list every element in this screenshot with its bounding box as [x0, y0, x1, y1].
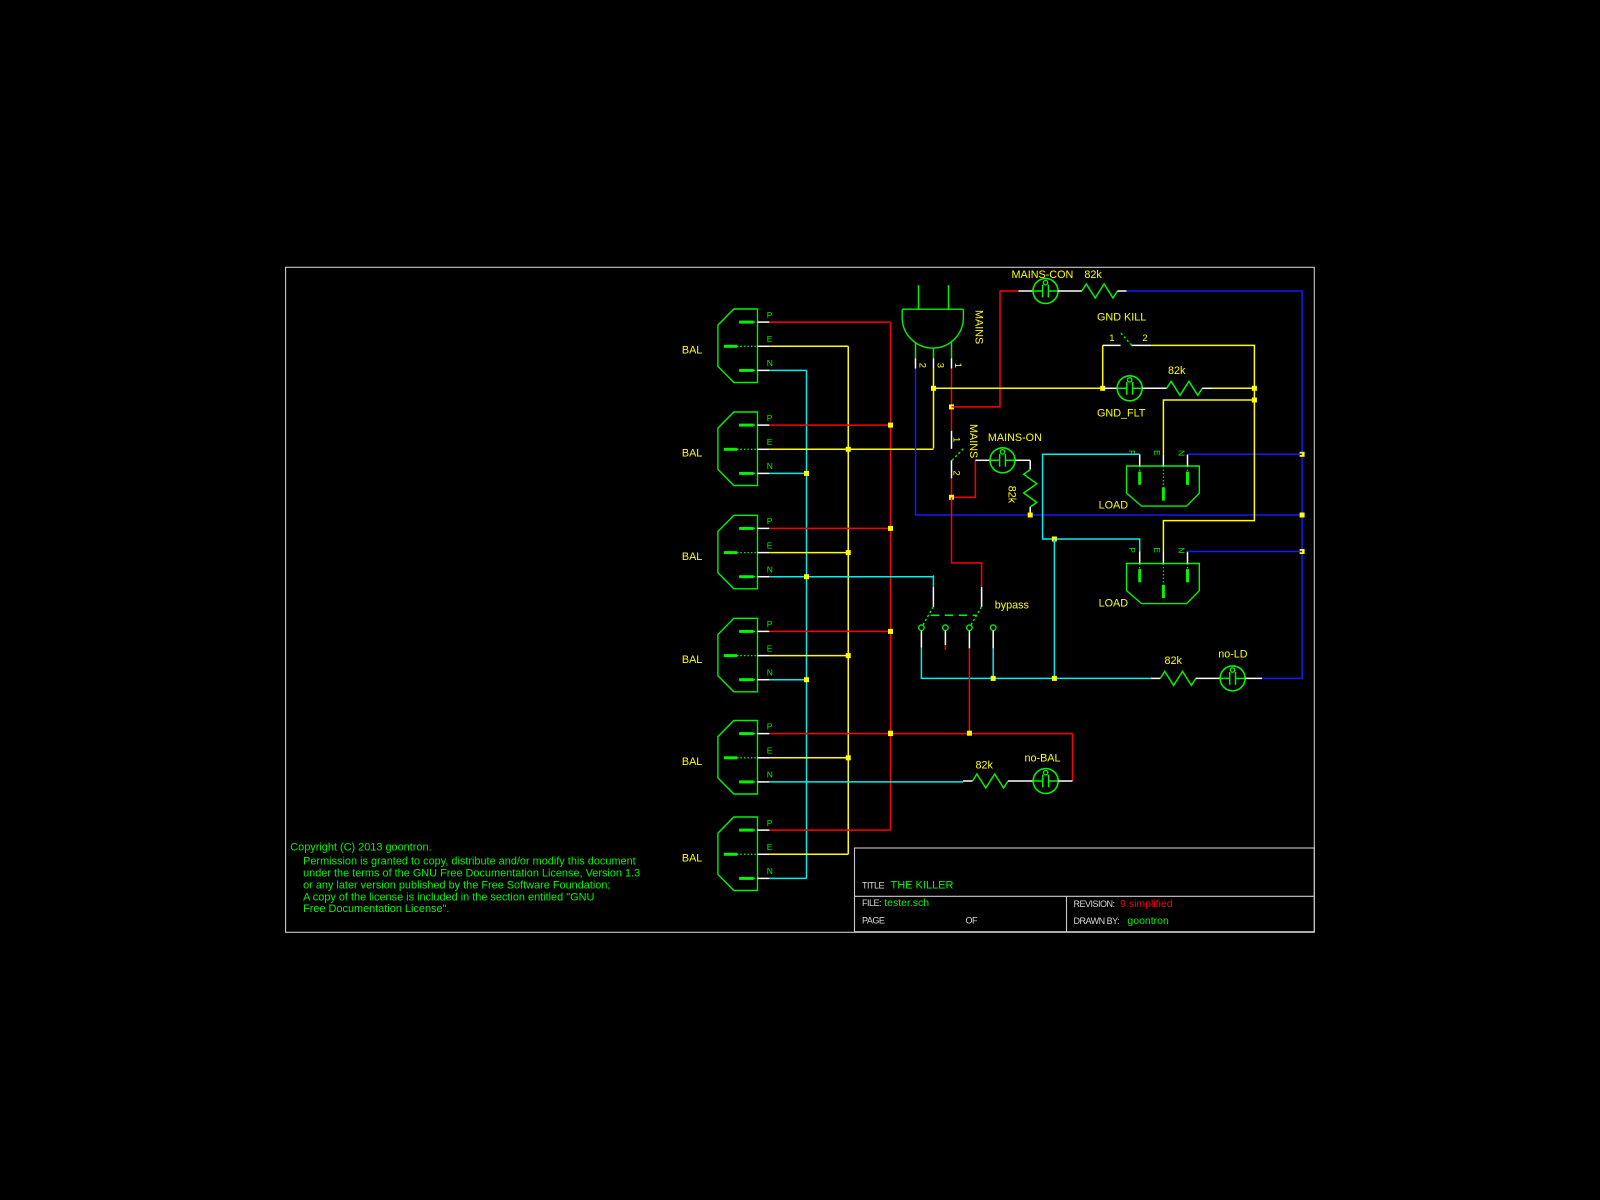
svg-text:REVISION:: REVISION:	[1074, 899, 1115, 909]
svg-text:N: N	[1176, 547, 1186, 553]
svg-text:N: N	[1176, 450, 1186, 456]
svg-text:1: 1	[952, 363, 963, 368]
svg-text:N: N	[767, 565, 773, 575]
svg-text:no-BAL: no-BAL	[1025, 753, 1061, 765]
svg-text:N: N	[767, 770, 773, 780]
svg-text:P: P	[1127, 450, 1137, 456]
svg-text:82k: 82k	[1084, 269, 1102, 281]
svg-text:9 simplified: 9 simplified	[1120, 898, 1173, 910]
svg-text:under the terms of the GNU Fre: under the terms of the GNU Free Document…	[303, 867, 640, 879]
svg-text:P: P	[767, 310, 773, 320]
svg-text:tester.sch: tester.sch	[884, 897, 929, 909]
svg-text:N: N	[767, 358, 773, 368]
svg-text:E: E	[767, 540, 773, 550]
svg-text:LOAD: LOAD	[1099, 499, 1129, 511]
svg-text:BAL: BAL	[682, 756, 702, 768]
svg-text:P: P	[767, 413, 773, 423]
svg-text:A copy of the license is inclu: A copy of the license is included in the…	[303, 891, 594, 903]
svg-text:BAL: BAL	[682, 551, 702, 563]
svg-text:LOAD: LOAD	[1099, 597, 1129, 609]
svg-text:bypass: bypass	[995, 600, 1030, 612]
svg-text:P: P	[767, 818, 773, 828]
svg-text:BAL: BAL	[682, 853, 702, 865]
svg-text:3: 3	[935, 363, 946, 368]
svg-text:2: 2	[1142, 333, 1147, 344]
svg-text:82k: 82k	[1006, 486, 1018, 504]
svg-text:BAL: BAL	[682, 654, 702, 666]
svg-text:P: P	[767, 721, 773, 731]
svg-text:82k: 82k	[1165, 655, 1183, 667]
svg-text:P: P	[767, 619, 773, 629]
svg-text:N: N	[767, 866, 773, 876]
svg-text:DRAWN BY:: DRAWN BY:	[1074, 916, 1120, 926]
svg-text:P: P	[1127, 547, 1137, 553]
svg-text:Permission is granted to copy,: Permission is granted to copy, distribut…	[303, 855, 636, 867]
svg-text:GND KILL: GND KILL	[1097, 311, 1146, 323]
svg-text:TITLE: TITLE	[862, 881, 885, 891]
svg-text:E: E	[767, 842, 773, 852]
svg-text:82k: 82k	[976, 760, 994, 772]
svg-text:E: E	[767, 334, 773, 344]
svg-text:BAL: BAL	[682, 448, 702, 460]
svg-text:PAGE: PAGE	[862, 915, 885, 925]
svg-text:THE KILLER: THE KILLER	[891, 880, 954, 892]
svg-text:E: E	[1152, 547, 1162, 553]
svg-text:2: 2	[917, 363, 928, 368]
svg-text:E: E	[767, 437, 773, 447]
svg-text:1: 1	[1109, 333, 1114, 344]
svg-text:BAL: BAL	[682, 345, 702, 357]
svg-text:MAINS-ON: MAINS-ON	[988, 432, 1042, 444]
svg-text:2: 2	[951, 471, 962, 476]
svg-text:N: N	[767, 461, 773, 471]
svg-text:or any later version published: or any later version published by the Fr…	[303, 880, 610, 892]
svg-text:P: P	[767, 516, 773, 526]
svg-text:Copyright (C) 2013 goontron.: Copyright (C) 2013 goontron.	[290, 842, 431, 854]
svg-text:GND_FLT: GND_FLT	[1097, 407, 1146, 419]
svg-text:E: E	[1152, 450, 1162, 456]
svg-text:82k: 82k	[1168, 365, 1186, 377]
svg-text:Free Documentation License".: Free Documentation License".	[303, 903, 449, 915]
svg-text:no-LD: no-LD	[1218, 649, 1248, 661]
svg-text:E: E	[767, 746, 773, 756]
svg-text:FILE:: FILE:	[862, 898, 881, 908]
svg-text:E: E	[767, 643, 773, 653]
svg-text:goontron: goontron	[1127, 915, 1169, 927]
svg-text:MAINS-CON: MAINS-CON	[1012, 269, 1074, 281]
svg-text:N: N	[767, 668, 773, 678]
svg-text:1: 1	[951, 437, 962, 442]
svg-text:MAINS: MAINS	[967, 424, 979, 458]
svg-text:OF: OF	[966, 915, 979, 925]
svg-text:MAINS: MAINS	[973, 310, 985, 344]
